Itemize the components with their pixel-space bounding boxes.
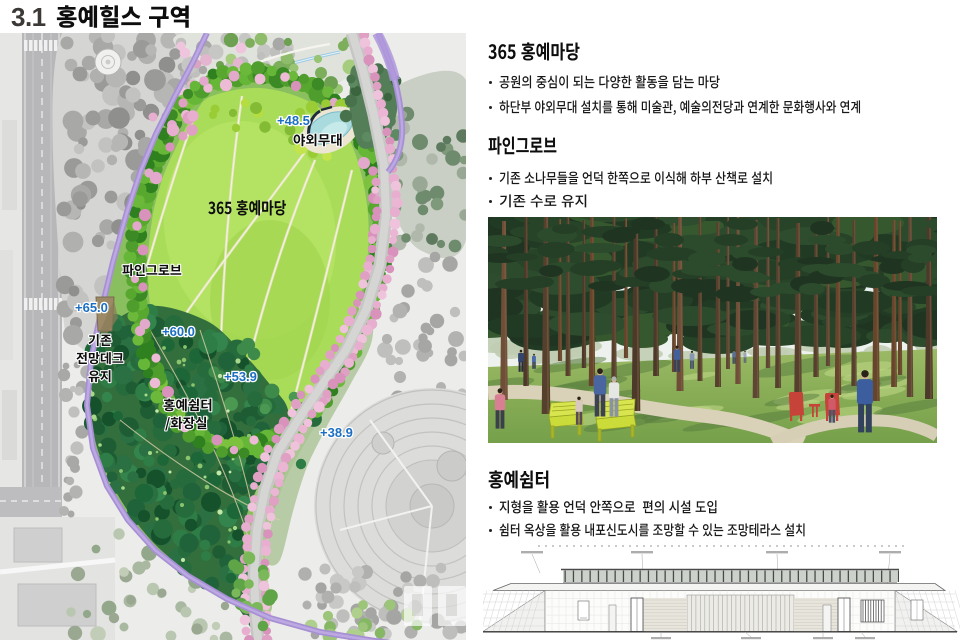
svg-text:+53.9: +53.9 bbox=[224, 369, 257, 384]
svg-text:+65.0: +65.0 bbox=[75, 300, 108, 315]
svg-text:+48.5: +48.5 bbox=[277, 113, 310, 128]
svg-text:+60.0: +60.0 bbox=[162, 324, 195, 339]
svg-text:+38.9: +38.9 bbox=[320, 425, 353, 440]
